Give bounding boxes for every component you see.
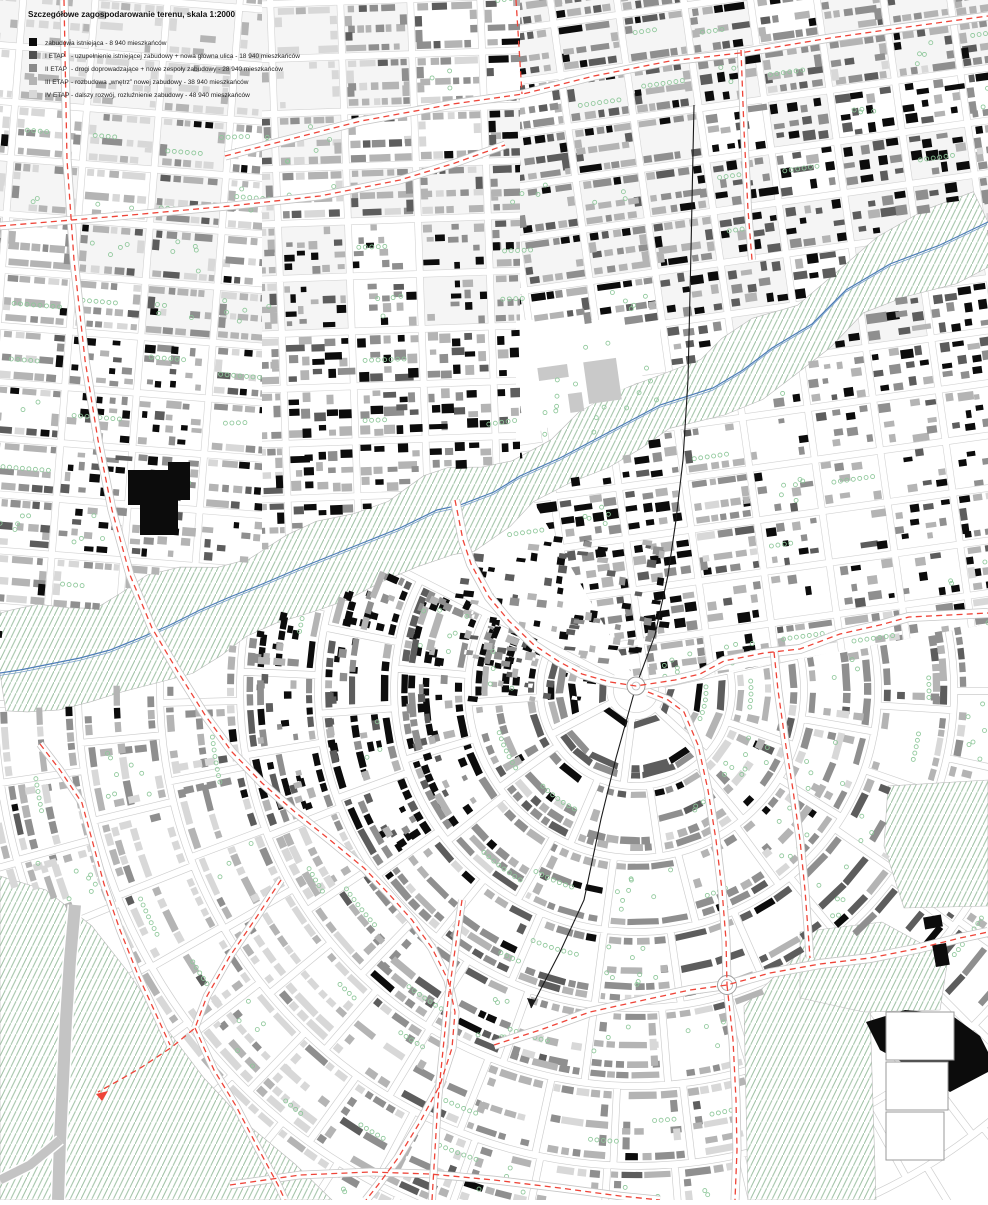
svg-text:I ETAP: I ETAP [45,53,65,60]
svg-text:- drogi doprowadzające + nowe: - drogi doprowadzające + nowe zespoły za… [71,66,283,73]
svg-text:zabudowa istniejąca - 8 940 mi: zabudowa istniejąca - 8 940 mieszkańców [45,40,167,47]
svg-text:Szczegółowe zagospodarowanie t: Szczegółowe zagospodarowanie terenu, ska… [28,10,235,19]
svg-text:- rozbudowa „wnętrz” nowej zab: - rozbudowa „wnętrz” nowej zabudowy - 38… [71,79,249,86]
svg-text:II ETAP: II ETAP [45,66,67,73]
svg-text:III ETAP: III ETAP [45,79,69,86]
svg-text:- dalszy rozwój, rozluźnienie: - dalszy rozwój, rozluźnienie zabudowy -… [71,92,250,99]
svg-text:IV ETAP: IV ETAP [45,92,69,99]
svg-text:- uzupełnienie istniejącej zab: - uzupełnienie istniejącej zabudowy + no… [71,53,300,60]
